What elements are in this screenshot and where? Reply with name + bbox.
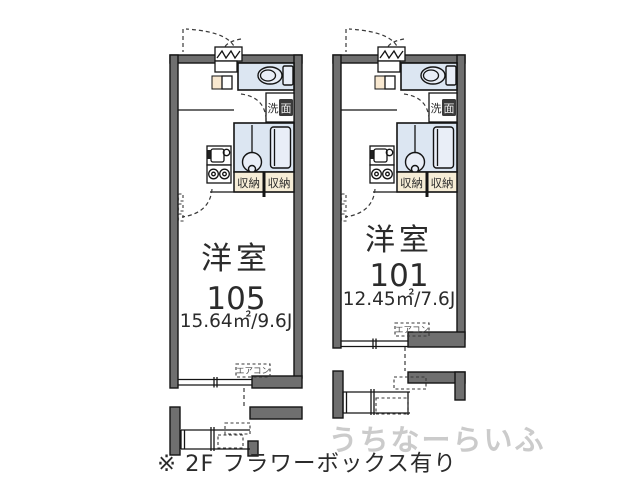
room-area-label: 12.45㎡/7.6J [343, 288, 456, 310]
wall-left [333, 55, 341, 348]
background [0, 0, 632, 480]
room-type-label: 洋室 [201, 241, 271, 277]
floorplan-svg: 洗 面 [0, 0, 632, 480]
wall-bottom-right [252, 376, 302, 388]
aircon-label: エアコン [236, 367, 270, 377]
room-type-label: 洋室 [365, 223, 433, 258]
aircon-label: エアコン [395, 326, 429, 336]
room-area-label: 15.64㎡/9.6J [180, 310, 293, 332]
floorplan-image: 洗 面 [0, 0, 632, 480]
note-text: ※ 2F フラワーボックス有り [157, 451, 457, 477]
wall-right [457, 55, 465, 339]
wall-right [294, 55, 302, 378]
wall-left [170, 55, 178, 388]
